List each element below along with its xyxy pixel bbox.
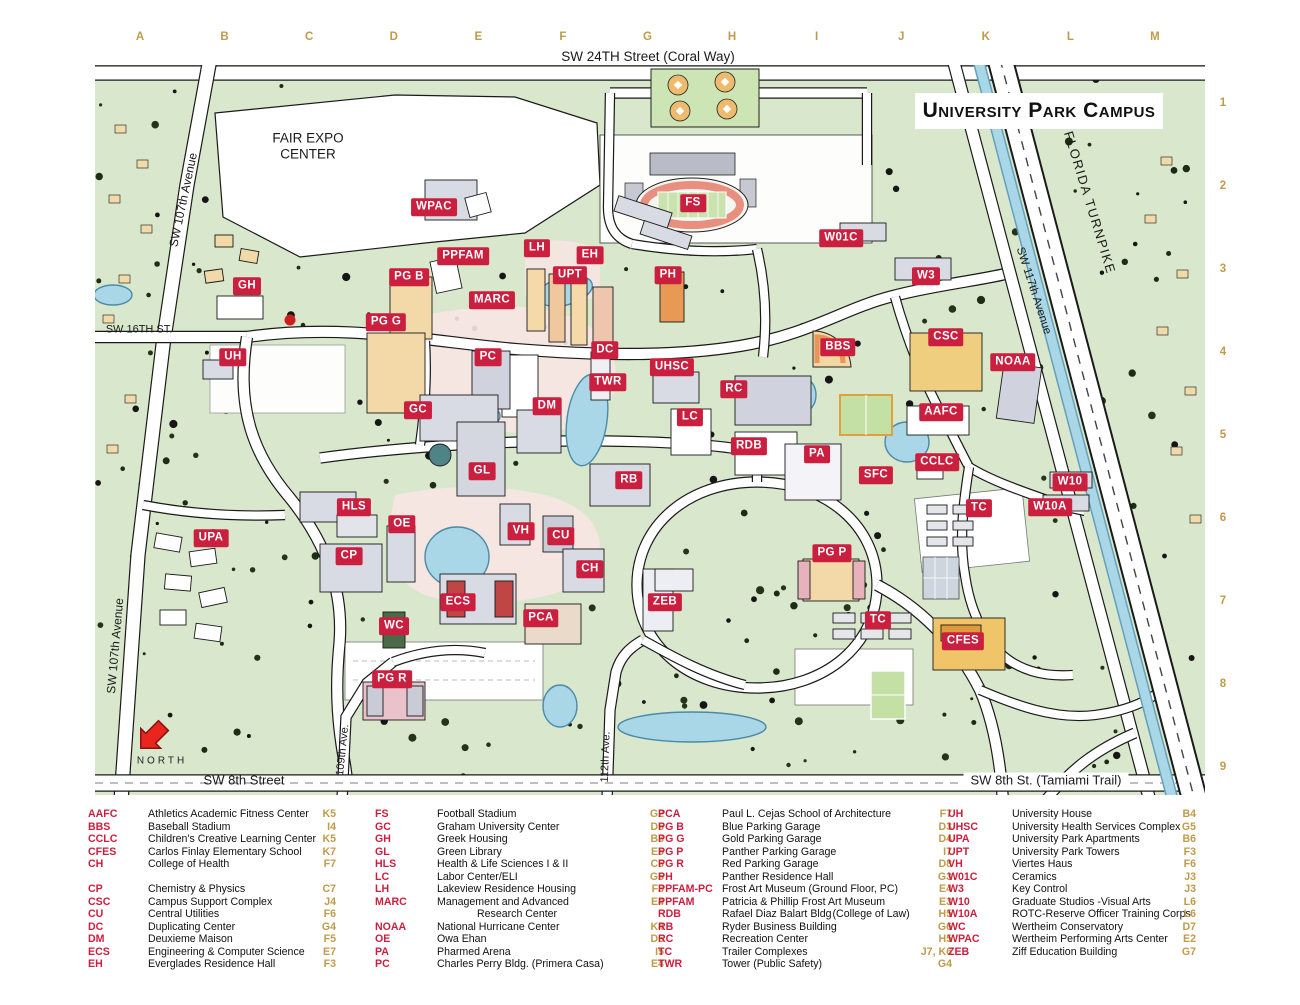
- fair-expo-center-label: FAIR EXPO CENTER: [272, 130, 343, 161]
- legend-abbr-pg-r: PG R: [658, 858, 684, 871]
- legend-abbr-ph: PH: [658, 871, 673, 884]
- legend-abbr-ppfam-pc: PPFAM-PC: [658, 883, 713, 896]
- legend-name-ch: College of Health: [148, 858, 229, 871]
- grid-number-1: 1: [1220, 97, 1226, 109]
- grid-letter-d: D: [390, 31, 398, 43]
- grid-number-9: 9: [1220, 761, 1226, 773]
- legend-grid-tc: J7, K6: [882, 946, 952, 959]
- legend-grid-pc: E4: [594, 958, 664, 971]
- map-label-rc[interactable]: RC: [720, 380, 747, 398]
- map-label-oe[interactable]: OE: [388, 515, 415, 533]
- legend-grid-cu: F6: [266, 908, 336, 921]
- map-label-lc[interactable]: LC: [677, 408, 703, 426]
- map-label-w10[interactable]: W10: [1053, 473, 1088, 491]
- map-label-uh[interactable]: UH: [219, 348, 246, 366]
- legend-grid-fs: G2: [594, 808, 664, 821]
- map-label-wc[interactable]: WC: [379, 617, 409, 635]
- legend-grid-noaa: K4: [594, 921, 664, 934]
- map-label-tc-2[interactable]: TC: [865, 611, 891, 629]
- north-label: NORTH: [137, 756, 187, 767]
- legend-abbr-rb: RB: [658, 921, 673, 934]
- legend-grid-w01c: J3: [1126, 871, 1196, 884]
- map-label-eh[interactable]: EH: [577, 246, 604, 264]
- legend-name-zeb: Ziff Education Building: [1012, 946, 1117, 959]
- grid-letter-g: G: [643, 31, 652, 43]
- map-label-pc[interactable]: PC: [475, 348, 502, 366]
- legend-abbr-w3: W3: [948, 883, 964, 896]
- legend-name-lh: Lakeview Residence Housing: [437, 883, 576, 896]
- legend-name-rb: Ryder Business Building: [722, 921, 837, 934]
- legend-abbr-rc: RC: [658, 933, 673, 946]
- legend-abbr-cu: CU: [88, 908, 103, 921]
- map-label-cclc[interactable]: CCLC: [915, 453, 959, 471]
- map-label-sfc[interactable]: SFC: [859, 466, 893, 484]
- legend-abbr-uhsc: UHSC: [948, 821, 978, 834]
- legend-grid-cclc: K5: [266, 833, 336, 846]
- legend-grid-lc: G5: [594, 871, 664, 884]
- grid-letter-h: H: [728, 31, 736, 43]
- grid-letter-m: M: [1150, 31, 1160, 43]
- legend-name-pg-g: Gold Parking Garage: [722, 833, 822, 846]
- legend-grid-pg-b: D3: [882, 821, 952, 834]
- legend-name-w3: Key Control: [1012, 883, 1067, 896]
- legend-grid-ecs: E7: [266, 946, 336, 959]
- legend-grid-bbs: I4: [266, 821, 336, 834]
- map-label-cfes[interactable]: CFES: [942, 632, 984, 650]
- legend-grid-wpac: E2: [1126, 933, 1196, 946]
- legend-abbr-cfes: CFES: [88, 846, 116, 859]
- legend-grid-rdb: H5: [882, 908, 952, 921]
- legend-grid-pg-r: D8: [882, 858, 952, 871]
- map-artwork: [95, 65, 1205, 795]
- map-label-dm[interactable]: DM: [533, 397, 562, 415]
- legend-grid-pg-g: D4: [882, 833, 952, 846]
- legend-grid-uh: B4: [1126, 808, 1196, 821]
- legend-abbr-upt: UPT: [948, 846, 969, 859]
- legend-grid-cfes: K7: [266, 846, 336, 859]
- map-label-bbs[interactable]: BBS: [820, 338, 855, 356]
- map-label-marc[interactable]: MARC: [469, 291, 515, 309]
- legend-name-twr: Tower (Public Safety): [722, 958, 822, 971]
- legend-name-csc: Campus Support Complex: [148, 896, 272, 909]
- map-label-uhsc[interactable]: UHSC: [650, 358, 694, 376]
- grid-letter-a: A: [136, 31, 144, 43]
- grid-letter-l: L: [1067, 31, 1074, 43]
- map-label-ecs[interactable]: ECS: [441, 593, 476, 611]
- legend-abbr-tc: TC: [658, 946, 672, 959]
- legend-name-cu: Central Utilities: [148, 908, 219, 921]
- map-label-csc[interactable]: CSC: [928, 328, 963, 346]
- legend-grid-w10: L6: [1126, 896, 1196, 909]
- legend-name-vh: Viertes Haus: [1012, 858, 1072, 871]
- legend-abbr-cp: CP: [88, 883, 103, 896]
- legend-grid-pg-p: I7: [882, 846, 952, 859]
- legend-abbr-vh: VH: [948, 858, 963, 871]
- map-label-zeb[interactable]: ZEB: [648, 593, 682, 611]
- 112th-ave-label: 112th Ave.: [599, 731, 613, 782]
- legend-grid-dm: F5: [266, 933, 336, 946]
- map-label-tc[interactable]: TC: [966, 499, 992, 517]
- tamiami-trail-label: SW 8th St. (Tamiami Trail): [964, 773, 1129, 790]
- legend-grid-upt: F3: [1126, 846, 1196, 859]
- legend-abbr-oe: OE: [375, 933, 390, 946]
- legend-name-uh: University House: [1012, 808, 1092, 821]
- campus-map: [95, 65, 1205, 795]
- legend-name-ppfam-pc: Frost Art Museum (Ground Floor, PC): [722, 883, 898, 896]
- legend-abbr-pg-p: PG P: [658, 846, 683, 859]
- map-label-upa[interactable]: UPA: [194, 529, 229, 547]
- legend-name-w01c: Ceramics: [1012, 871, 1057, 884]
- legend-grid-hls: C6: [594, 858, 664, 871]
- legend-abbr-dm: DM: [88, 933, 104, 946]
- legend-grid-ph: G3: [882, 871, 952, 884]
- legend-abbr-gl: GL: [375, 846, 390, 859]
- grid-letter-f: F: [559, 31, 566, 43]
- map-label-gc[interactable]: GC: [404, 401, 432, 419]
- legend-abbr-dc: DC: [88, 921, 103, 934]
- map-title: University Park Campus: [915, 93, 1163, 129]
- legend-name-hls: Health & Life Sciences I & II: [437, 858, 568, 871]
- campus-map-page: SW 24TH Street (Coral Way) University Pa…: [0, 0, 1300, 1005]
- legend-grid-ch: F7: [266, 858, 336, 871]
- legend-grid-pa: I5: [594, 946, 664, 959]
- legend-abbr-zeb: ZEB: [948, 946, 969, 959]
- legend-abbr-ecs: ECS: [88, 946, 110, 959]
- legend-abbr-wc: WC: [948, 921, 966, 934]
- legend-grid-twr: G4: [882, 958, 952, 971]
- legend-name-gh: Greek Housing: [437, 833, 508, 846]
- legend-name-dm: Deuxieme Maison: [148, 933, 233, 946]
- legend-grid-rc: H5: [882, 933, 952, 946]
- legend-grid-gh: B3: [594, 833, 664, 846]
- legend-grid-wc: D7: [1126, 921, 1196, 934]
- legend-name-pa: Pharmed Arena: [437, 946, 511, 959]
- legend-grid-vh: F6: [1126, 858, 1196, 871]
- legend-grid-w10a: L6: [1126, 908, 1196, 921]
- legend-abbr-upa: UPA: [948, 833, 970, 846]
- grid-number-4: 4: [1220, 346, 1226, 358]
- legend-grid-lh: F3: [594, 883, 664, 896]
- map-label-cp[interactable]: CP: [336, 547, 363, 565]
- legend-abbr-lc: LC: [375, 871, 389, 884]
- legend-abbr-gc: GC: [375, 821, 391, 834]
- legend-name-rc: Recreation Center: [722, 933, 808, 946]
- legend-abbr-wpac: WPAC: [948, 933, 980, 946]
- legend-name-upa: University Park Apartments: [1012, 833, 1140, 846]
- legend-grid-marc: E4: [594, 896, 664, 909]
- map-label-pg-g[interactable]: PG G: [366, 313, 406, 331]
- grid-letter-i: I: [815, 31, 818, 43]
- legend-grid-ppfam: E3: [882, 896, 952, 909]
- map-label-ch[interactable]: CH: [576, 560, 603, 578]
- grid-letter-b: B: [220, 31, 228, 43]
- legend-name-cp: Chemistry & Physics: [148, 883, 245, 896]
- map-label-gh[interactable]: GH: [233, 277, 261, 295]
- legend-grid-cp: C7: [266, 883, 336, 896]
- legend-abbr-ch: CH: [88, 858, 103, 871]
- legend-grid-eh: F3: [266, 958, 336, 971]
- legend-name-upt: University Park Towers: [1012, 846, 1120, 859]
- map-label-upt[interactable]: UPT: [553, 266, 587, 284]
- legend-abbr-eh: EH: [88, 958, 103, 971]
- legend-abbr-w10: W10: [948, 896, 970, 909]
- grid-letter-e: E: [474, 31, 482, 43]
- map-label-dc[interactable]: DC: [591, 341, 618, 359]
- legend-grid-zeb: G7: [1126, 946, 1196, 959]
- legend-abbr-gh: GH: [375, 833, 391, 846]
- grid-number-6: 6: [1220, 512, 1226, 524]
- map-label-ph[interactable]: PH: [655, 266, 682, 284]
- legend-name-marc: Management and Advanced: [437, 896, 569, 909]
- legend-grid-ppfam-pc: E4: [882, 883, 952, 896]
- legend-abbr-w01c: W01C: [948, 871, 977, 884]
- legend-abbr-ppfam: PPFAM: [658, 896, 695, 909]
- legend-grid-aafc: K5: [266, 808, 336, 821]
- map-label-noaa[interactable]: NOAA: [990, 353, 1035, 371]
- map-label-rb[interactable]: RB: [615, 471, 642, 489]
- legend-name-pc: Charles Perry Bldg. (Primera Casa): [437, 958, 604, 971]
- grid-letter-j: J: [898, 31, 904, 43]
- map-label-hls[interactable]: HLS: [337, 498, 371, 516]
- legend-name-bbs: Baseball Stadium: [148, 821, 230, 834]
- legend-name-ppfam: Patricia & Phillip Frost Art Museum: [722, 896, 885, 909]
- grid-number-5: 5: [1220, 429, 1226, 441]
- legend-abbr-pca: PCA: [658, 808, 680, 821]
- map-label-lh[interactable]: LH: [524, 239, 550, 257]
- legend-abbr-pg-g: PG G: [658, 833, 685, 846]
- map-label-gl[interactable]: GL: [469, 462, 496, 480]
- legend-name-eh: Everglades Residence Hall: [148, 958, 275, 971]
- legend-abbr-bbs: BBS: [88, 821, 110, 834]
- legend-grid-pca: F7: [882, 808, 952, 821]
- map-label-rdb[interactable]: RDB: [731, 437, 767, 455]
- legend-abbr-twr: TWR: [658, 958, 682, 971]
- sw-8th-street-label: SW 8th Street: [204, 774, 285, 789]
- map-label-pg-b[interactable]: PG B: [389, 268, 429, 286]
- legend-name-gl: Green Library: [437, 846, 502, 859]
- legend-abbr-w10a: W10A: [948, 908, 977, 921]
- legend-abbr-noaa: NOAA: [375, 921, 406, 934]
- map-label-w3[interactable]: W3: [912, 267, 940, 285]
- map-label-pa[interactable]: PA: [804, 445, 830, 463]
- legend-name-wc: Wertheim Conservatory: [1012, 921, 1123, 934]
- legend-grid-dc: G4: [266, 921, 336, 934]
- map-label-pca[interactable]: PCA: [523, 609, 558, 627]
- legend-name-pca: Paul L. Cejas School of Architecture: [722, 808, 891, 821]
- legend-grid-w3: J3: [1126, 883, 1196, 896]
- legend-grid-gl: E5: [594, 846, 664, 859]
- legend-name-gc: Graham University Center: [437, 821, 559, 834]
- legend-name-pg-r: Red Parking Garage: [722, 858, 819, 871]
- legend-abbr-uh: UH: [948, 808, 963, 821]
- map-label-cu[interactable]: CU: [547, 527, 574, 545]
- map-label-pg-p[interactable]: PG P: [812, 544, 851, 562]
- legend-abbr-pc: PC: [375, 958, 390, 971]
- grid-number-2: 2: [1220, 180, 1226, 192]
- legend-abbr-pg-b: PG B: [658, 821, 684, 834]
- legend-abbr-lh: LH: [375, 883, 389, 896]
- legend-name-dc: Duplicating Center: [148, 921, 235, 934]
- legend-name-noaa: National Hurricane Center: [437, 921, 559, 934]
- legend-abbr-csc: CSC: [88, 896, 110, 909]
- legend-name-pg-p: Panther Parking Garage: [722, 846, 836, 859]
- legend-abbr-hls: HLS: [375, 858, 396, 871]
- map-label-w10a[interactable]: W10A: [1028, 498, 1072, 516]
- legend-abbr-rdb: RDB: [658, 908, 681, 921]
- map-label-vh[interactable]: VH: [508, 522, 535, 540]
- legend-abbr-fs: FS: [375, 808, 389, 821]
- legend-name-cont: Research Center: [477, 908, 557, 921]
- legend-abbr-cclc: CCLC: [88, 833, 117, 846]
- legend-name-fs: Football Stadium: [437, 808, 517, 821]
- sw-24th-street-label: SW 24TH Street (Coral Way): [398, 49, 898, 64]
- map-label-aafc[interactable]: AAFC: [919, 403, 963, 421]
- legend-grid-oe: D6: [594, 933, 664, 946]
- map-label-ppfam[interactable]: PPFAM: [437, 247, 489, 265]
- legend-abbr-pa: PA: [375, 946, 389, 959]
- grid-number-8: 8: [1220, 678, 1226, 690]
- grid-number-3: 3: [1220, 263, 1226, 275]
- legend-grid-rb: G6: [882, 921, 952, 934]
- map-label-pg-r[interactable]: PG R: [372, 670, 412, 688]
- legend-abbr-marc: MARC: [375, 896, 407, 909]
- legend-abbr-aafc: AAFC: [88, 808, 117, 821]
- legend-grid-csc: J4: [266, 896, 336, 909]
- legend-name-lc: Labor Center/ELI: [437, 871, 518, 884]
- map-label-twr[interactable]: TWR: [589, 373, 626, 391]
- map-label-w01c[interactable]: W01C: [819, 229, 863, 247]
- legend-grid-upa: B6: [1126, 833, 1196, 846]
- sw-16th-st-label: SW 16TH ST.: [106, 324, 173, 337]
- legend-grid-uhsc: G5: [1126, 821, 1196, 834]
- map-label-wpac[interactable]: WPAC: [411, 198, 457, 216]
- grid-number-7: 7: [1220, 595, 1226, 607]
- legend-name-oe: Owa Ehan: [437, 933, 486, 946]
- map-label-fs[interactable]: FS: [680, 194, 706, 212]
- legend-name-ph: Panther Residence Hall: [722, 871, 833, 884]
- legend-name-tc: Trailer Complexes: [722, 946, 808, 959]
- legend-grid-gc: D5: [594, 821, 664, 834]
- legend-name-pg-b: Blue Parking Garage: [722, 821, 820, 834]
- grid-letter-k: K: [982, 31, 990, 43]
- grid-letter-c: C: [305, 31, 313, 43]
